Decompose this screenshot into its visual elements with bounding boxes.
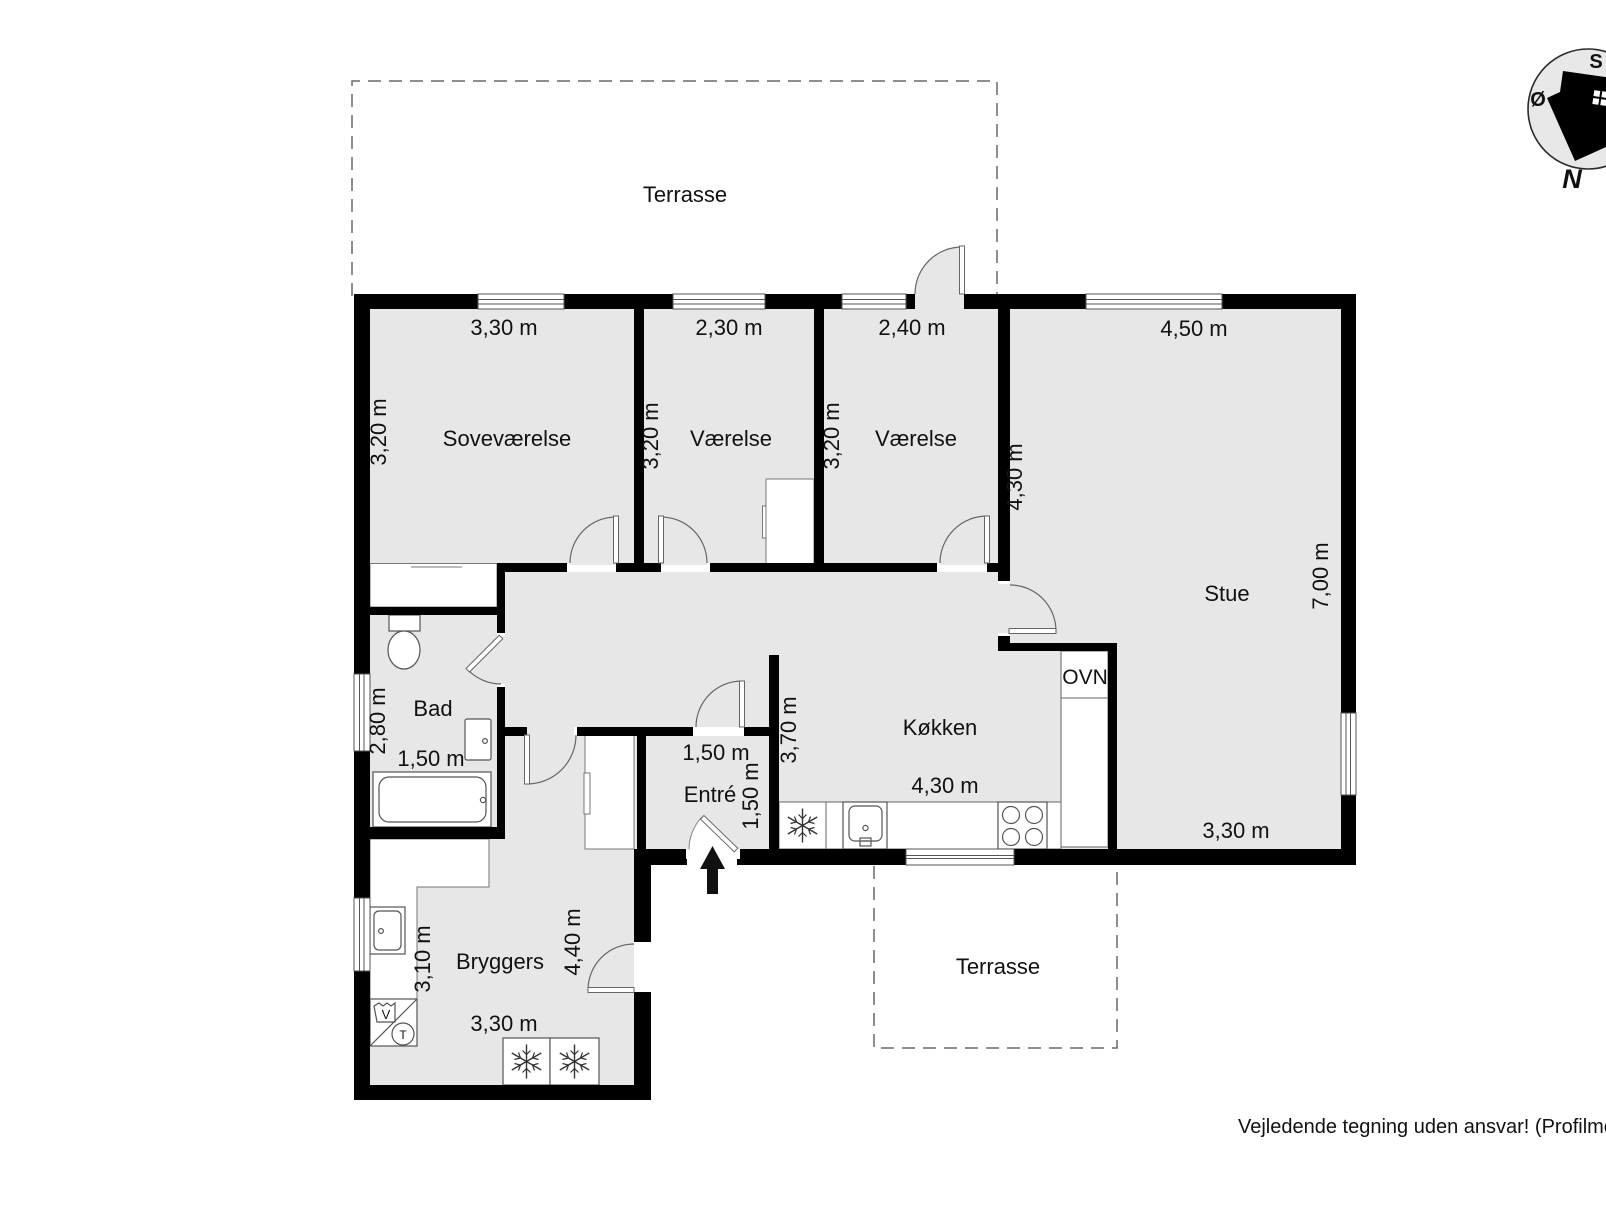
svg-text:Værelse: Værelse bbox=[875, 426, 957, 451]
svg-text:3,30 m: 3,30 m bbox=[1202, 818, 1269, 843]
svg-text:T: T bbox=[399, 1028, 407, 1042]
svg-text:Værelse: Værelse bbox=[690, 426, 772, 451]
svg-text:3,20 m: 3,20 m bbox=[638, 402, 663, 469]
svg-text:3,70 m: 3,70 m bbox=[776, 696, 801, 763]
svg-text:Soveværelse: Soveværelse bbox=[443, 426, 571, 451]
svg-text:2,40 m: 2,40 m bbox=[878, 315, 945, 340]
svg-text:Køkken: Køkken bbox=[903, 715, 978, 740]
svg-text:1,50 m: 1,50 m bbox=[682, 740, 749, 765]
svg-text:1,50 m: 1,50 m bbox=[738, 762, 763, 829]
svg-text:Bryggers: Bryggers bbox=[456, 949, 544, 974]
svg-text:N: N bbox=[1562, 164, 1582, 194]
svg-text:4,50 m: 4,50 m bbox=[1160, 316, 1227, 341]
svg-text:7,00 m: 7,00 m bbox=[1308, 542, 1333, 609]
svg-text:Ø: Ø bbox=[1530, 89, 1546, 111]
svg-text:4,40 m: 4,40 m bbox=[560, 908, 585, 975]
svg-text:Stue: Stue bbox=[1204, 581, 1249, 606]
svg-text:S: S bbox=[1589, 51, 1602, 73]
svg-text:3,20 m: 3,20 m bbox=[819, 402, 844, 469]
svg-text:4,30 m: 4,30 m bbox=[911, 773, 978, 798]
svg-text:Bad: Bad bbox=[413, 696, 452, 721]
svg-text:3,20 m: 3,20 m bbox=[366, 398, 391, 465]
svg-text:Terrasse: Terrasse bbox=[956, 954, 1040, 979]
svg-text:OVN: OVN bbox=[1062, 666, 1108, 689]
svg-text:3,30 m: 3,30 m bbox=[470, 315, 537, 340]
svg-text:Entré: Entré bbox=[684, 782, 737, 807]
svg-text:1,50 m: 1,50 m bbox=[397, 746, 464, 771]
svg-text:3,10 m: 3,10 m bbox=[410, 925, 435, 992]
svg-text:4,30 m: 4,30 m bbox=[1002, 443, 1027, 510]
svg-text:2,30 m: 2,30 m bbox=[695, 315, 762, 340]
svg-text:3,30 m: 3,30 m bbox=[470, 1011, 537, 1036]
svg-text:V: V bbox=[382, 1007, 391, 1022]
svg-text:Terrasse: Terrasse bbox=[643, 182, 727, 207]
svg-text:Vejledende tegning uden ansvar: Vejledende tegning uden ansvar! (Profilm… bbox=[1238, 1116, 1606, 1138]
svg-text:2,80 m: 2,80 m bbox=[365, 687, 390, 754]
